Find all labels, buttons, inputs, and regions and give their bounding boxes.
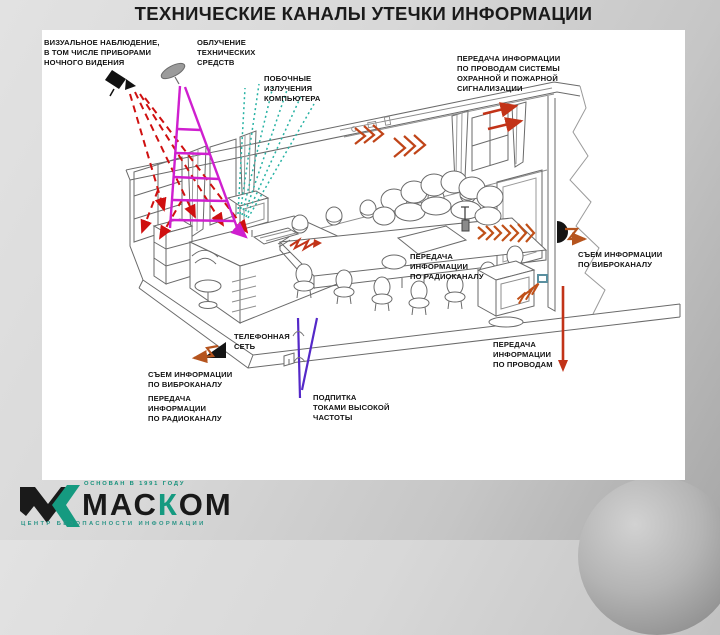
camera-icon bbox=[105, 70, 136, 96]
slide-title: ТЕХНИЧЕСКИЕ КАНАЛЫ УТЕЧКИ ИНФОРМАЦИИ bbox=[42, 3, 685, 25]
phone-lines bbox=[284, 318, 317, 398]
cabinet bbox=[154, 219, 192, 284]
logo-brand-pre: МАС bbox=[82, 487, 158, 522]
alarm-wire-arrows bbox=[483, 106, 521, 129]
logo-brand-post: ОМ bbox=[179, 487, 233, 522]
label-phone-network: ТЕЛЕФОННАЯ СЕТЬ bbox=[234, 332, 290, 352]
logo-brand-accent: К bbox=[158, 487, 179, 522]
contact-mic-icon bbox=[557, 221, 568, 243]
label-radio-channel-sofa: ПЕРЕДАЧА ИНФОРМАЦИИ ПО РАДИОКАНАЛУ bbox=[410, 252, 484, 282]
wire-down-arrow bbox=[558, 286, 568, 372]
label-hf-feed: ПОДПИТКА ТОКАМИ ВЫСОКОЙ ЧАСТОТЫ bbox=[313, 393, 390, 423]
label-vibro-channel-left: СЪЕМ ИНФОРМАЦИИ ПО ВИБРОКАНАЛУ bbox=[148, 370, 232, 390]
label-alarm-wires: ПЕРЕДАЧА ИНФОРМАЦИИ ПО ПРОВОДАМ СИСТЕМЫ … bbox=[457, 54, 560, 93]
label-visual-observation: ВИЗУАЛЬНОЕ НАБЛЮДЕНИЕ, В ТОМ ЧИСЛЕ ПРИБО… bbox=[44, 38, 160, 68]
slide: { "slide": { "title": "ТЕХНИЧЕСКИЕ КАНАЛ… bbox=[0, 0, 720, 540]
label-wires-bottom: ПЕРЕДАЧА ИНФОРМАЦИИ ПО ПРОВОДАМ bbox=[493, 340, 553, 370]
label-vibro-channel-right: СЪЕМ ИНФОРМАЦИИ ПО ВИБРОКАНАЛУ bbox=[578, 250, 662, 270]
logo: ОСНОВАН В 1991 ГОДУ МАСКОМ ЦЕНТР БЕЗОПАС… bbox=[18, 480, 308, 538]
content-panel: ВИЗУАЛЬНОЕ НАБЛЮДЕНИЕ, В ТОМ ЧИСЛЕ ПРИБО… bbox=[42, 30, 685, 480]
background-sphere-decoration bbox=[578, 477, 720, 635]
label-side-emissions: ПОБОЧНЫЕ ИЗЛУЧЕНИЯ КОМПЬЮТЕРА bbox=[264, 74, 321, 104]
label-irradiation: ОБЛУЧЕНИЕ ТЕХНИЧЕСКИХ СРЕДСТВ bbox=[197, 38, 255, 68]
logo-tagline-bottom: ЦЕНТР БЕЗОПАСНОСТИ ИНФОРМАЦИИ bbox=[21, 521, 206, 527]
label-radio-channel-left: ПЕРЕДАЧА ИНФОРМАЦИИ ПО РАДИОКАНАЛУ bbox=[148, 394, 222, 424]
logo-brand: МАСКОМ bbox=[82, 487, 233, 523]
chevron-waves-wall bbox=[355, 125, 425, 157]
vibro-arrow-right bbox=[565, 229, 585, 239]
dish-antenna-icon bbox=[159, 60, 187, 84]
